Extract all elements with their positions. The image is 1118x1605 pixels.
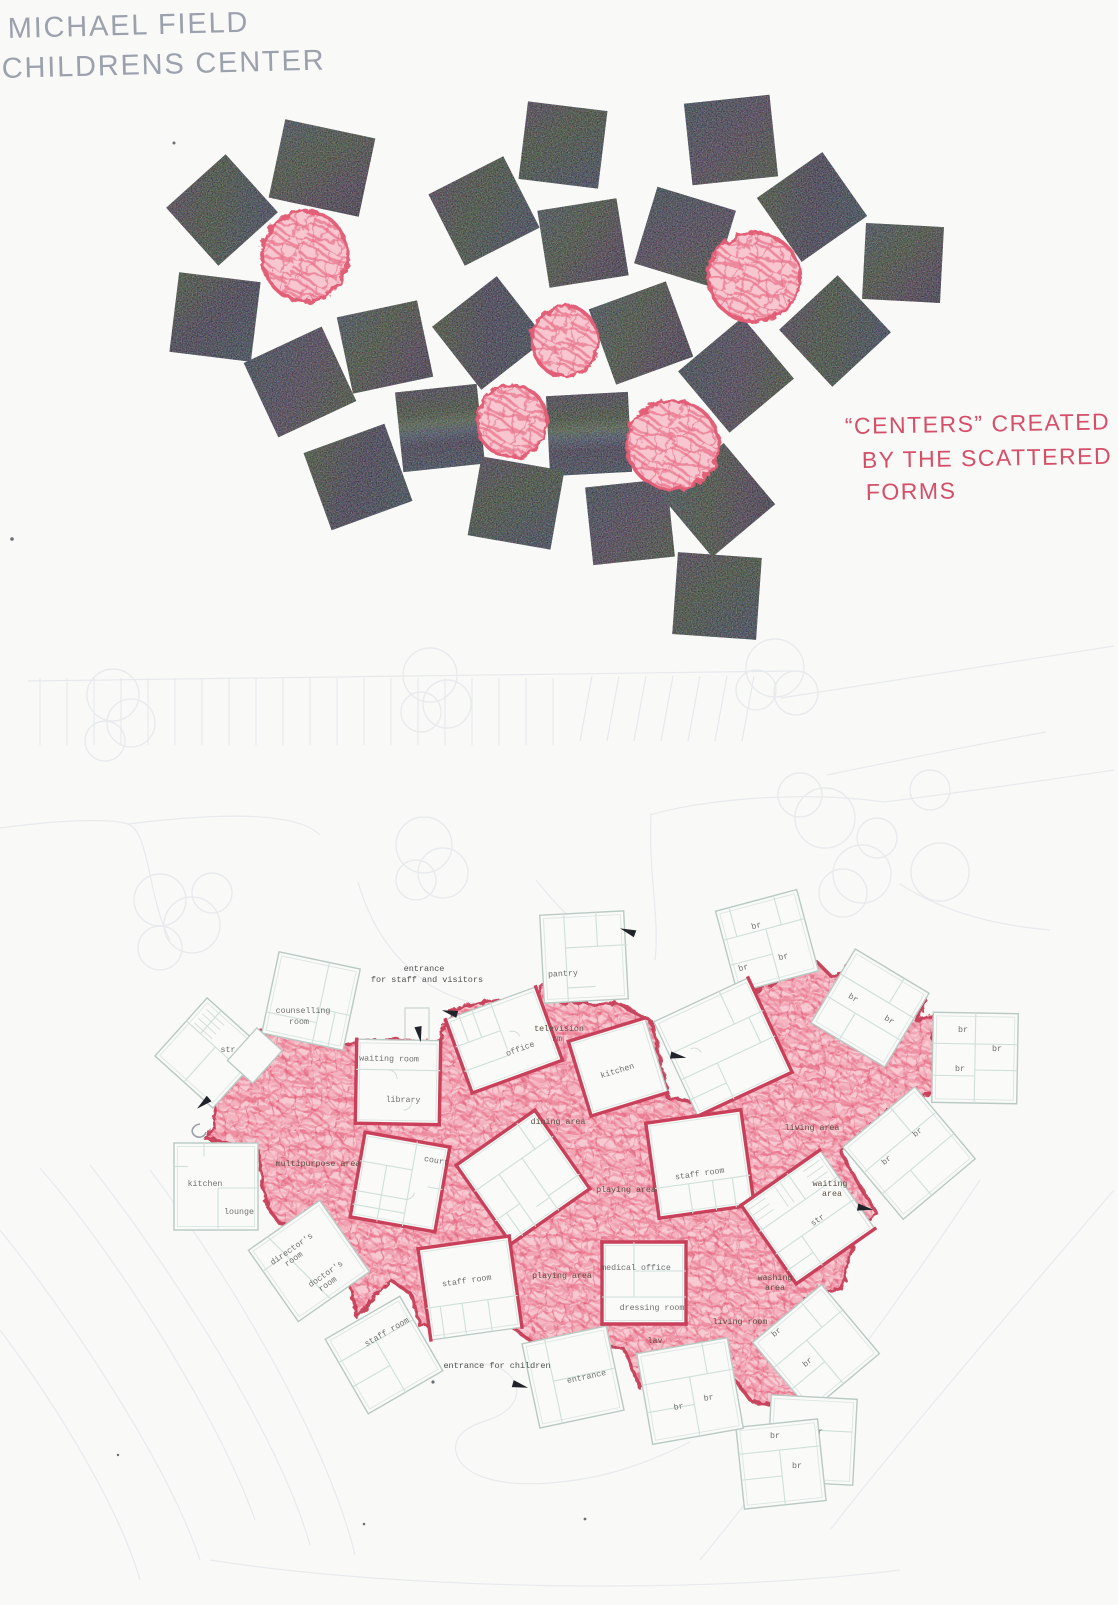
svg-text:br: br bbox=[792, 1461, 802, 1471]
svg-text:“CENTERS” CREATED: “CENTERS” CREATED bbox=[845, 408, 1111, 439]
svg-text:living area: living area bbox=[785, 1123, 840, 1133]
svg-text:dressing room: dressing room bbox=[620, 1303, 685, 1313]
svg-text:medical office: medical office bbox=[601, 1263, 671, 1273]
svg-text:multipurpose area: multipurpose area bbox=[276, 1159, 361, 1169]
svg-text:playing area: playing area bbox=[532, 1271, 592, 1281]
svg-text:CHILDRENS CENTER: CHILDRENS CENTER bbox=[1, 45, 325, 85]
svg-text:br: br bbox=[955, 1064, 965, 1074]
svg-text:br: br bbox=[770, 1431, 780, 1441]
svg-text:library: library bbox=[386, 1095, 421, 1106]
svg-text:playing area: playing area bbox=[596, 1185, 656, 1195]
svg-text:BY THE SCATTERED: BY THE SCATTERED bbox=[862, 443, 1113, 473]
svg-text:washing: washing bbox=[758, 1273, 793, 1283]
svg-text:br: br bbox=[703, 1392, 715, 1404]
svg-text:room: room bbox=[289, 1018, 309, 1027]
svg-text:lounge: lounge bbox=[224, 1207, 254, 1217]
svg-text:dining area: dining area bbox=[531, 1117, 586, 1127]
svg-text:entrance for children: entrance for children bbox=[443, 1361, 550, 1371]
svg-text:br: br bbox=[958, 1025, 968, 1035]
svg-text:television: television bbox=[534, 1024, 584, 1034]
svg-text:for staff and visitors: for staff and visitors bbox=[371, 975, 483, 985]
svg-text:area: area bbox=[765, 1284, 785, 1293]
svg-text:waiting room: waiting room bbox=[359, 1053, 419, 1064]
svg-text:pantry: pantry bbox=[548, 969, 578, 980]
svg-text:counselling: counselling bbox=[276, 1006, 331, 1016]
svg-text:rm: rm bbox=[552, 1035, 562, 1044]
svg-text:entrance: entrance bbox=[404, 964, 445, 974]
svg-text:MICHAEL FIELD: MICHAEL FIELD bbox=[7, 7, 249, 45]
svg-text:br: br bbox=[992, 1044, 1002, 1054]
svg-text:waiting: waiting bbox=[813, 1179, 848, 1189]
svg-text:kitchen: kitchen bbox=[188, 1179, 223, 1189]
svg-text:living room: living room bbox=[713, 1317, 768, 1327]
svg-text:FORMS: FORMS bbox=[866, 477, 957, 505]
svg-text:lav: lav bbox=[648, 1336, 663, 1346]
svg-text:area: area bbox=[822, 1190, 842, 1199]
svg-text:br: br bbox=[673, 1401, 685, 1413]
svg-text:str: str bbox=[221, 1046, 236, 1055]
